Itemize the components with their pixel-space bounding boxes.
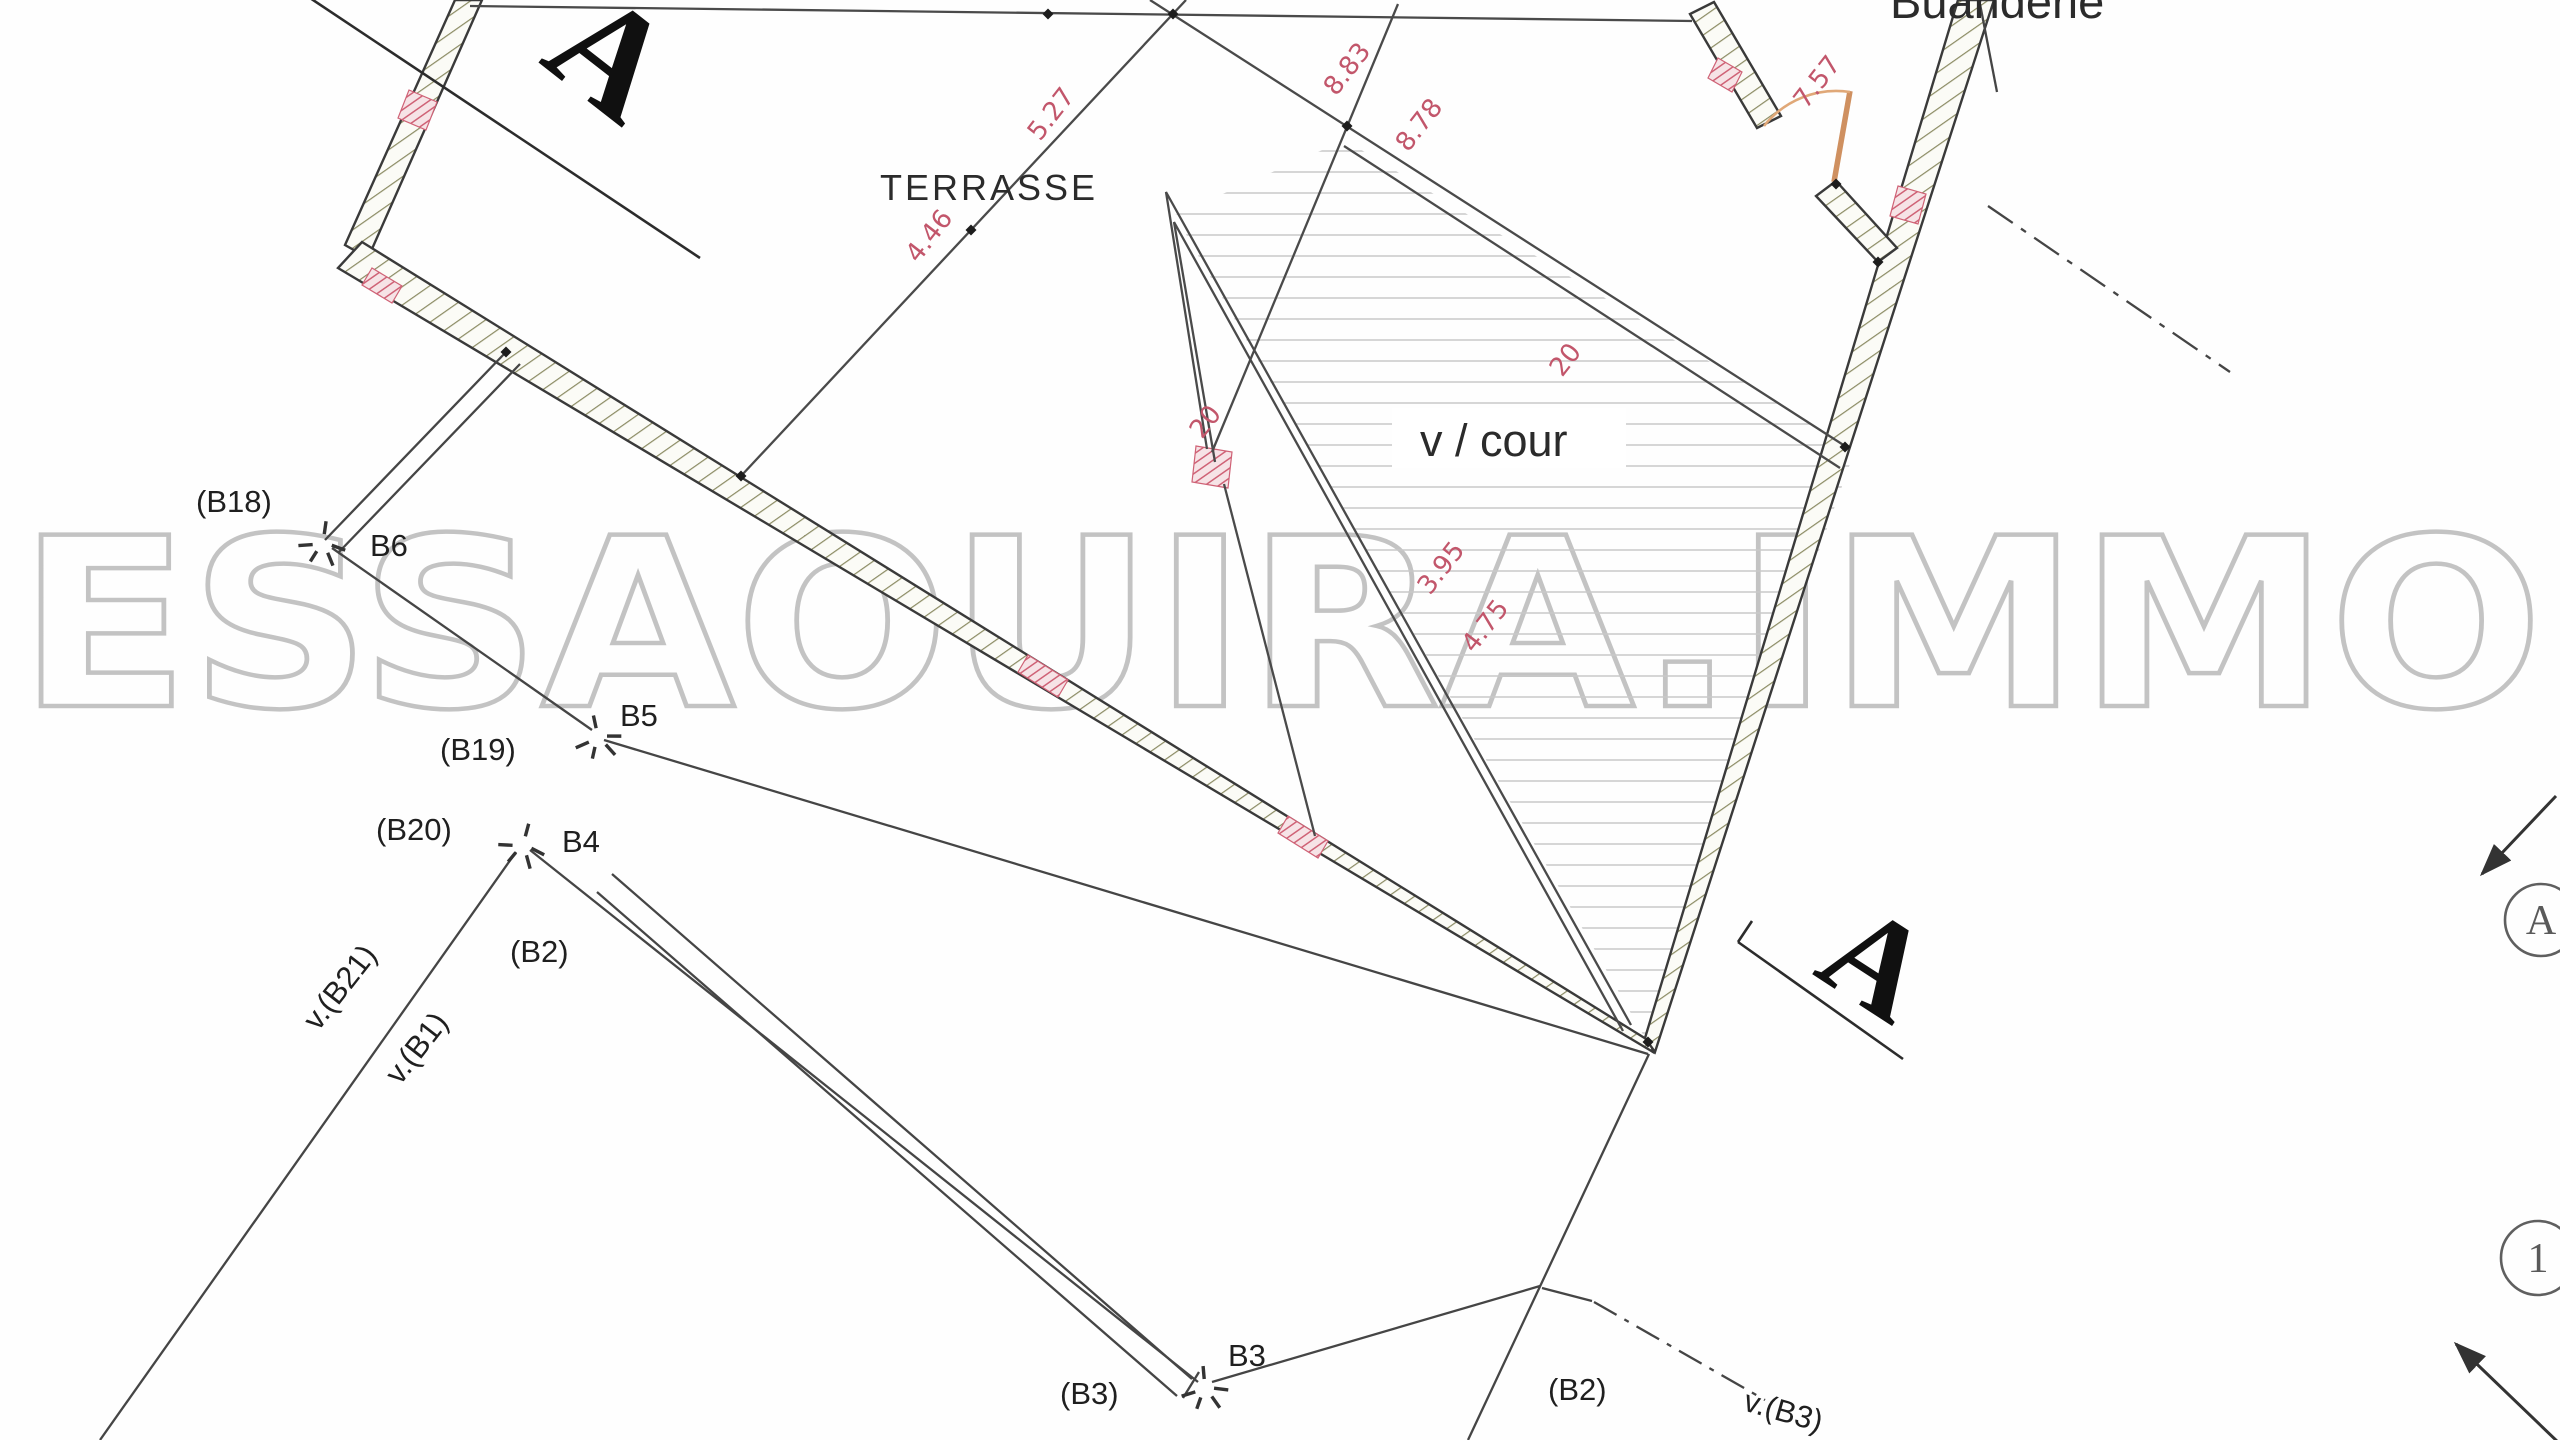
label-buanderie: Buanderie xyxy=(1890,0,2104,28)
reference-circles: A 1 xyxy=(2456,796,2560,1440)
section-letter-top: A xyxy=(517,0,705,154)
elevation-arrow xyxy=(2482,796,2556,874)
axis-arrow xyxy=(2456,1344,2560,1440)
label-b19: (B19) xyxy=(440,732,516,767)
dim-5-27: 5.27 xyxy=(1022,82,1081,146)
label-cour: v / cour xyxy=(1420,415,1568,466)
dim-4-46: 4.46 xyxy=(900,204,959,268)
opening-bottom-low xyxy=(1278,816,1328,858)
door-leaf xyxy=(1834,91,1850,182)
label-b2-bottom: (B2) xyxy=(1548,1372,1607,1407)
dashdot-northeast xyxy=(1988,206,2230,372)
dim-8-83: 8.83 xyxy=(1318,37,1377,101)
wall-buanderie-stub xyxy=(1690,2,1781,128)
elevation-circle-letter: A xyxy=(2526,898,2557,944)
dim-7-57: 7.57 xyxy=(1788,50,1847,114)
label-v-b1: v.(B1) xyxy=(378,1005,455,1090)
junction-tick xyxy=(1542,1288,1592,1301)
wall-terrace-left xyxy=(345,0,482,258)
label-b3-paren: (B3) xyxy=(1060,1376,1119,1411)
section-line-bottom-tick xyxy=(1738,921,1752,942)
label-b3: B3 xyxy=(1228,1338,1266,1373)
label-b5: B5 xyxy=(620,698,658,733)
b4-b3-line xyxy=(530,850,1198,1382)
floor-plan-page: ESSAOUIRA.IMMO xyxy=(0,0,2560,1440)
dim-8-78: 8.78 xyxy=(1390,93,1449,157)
dim-20-pier: 20 xyxy=(1184,400,1228,445)
offset-line-2 xyxy=(597,892,1177,1396)
wall-door-stub xyxy=(1816,181,1897,262)
point-b3 xyxy=(1178,1356,1229,1411)
label-b4: B4 xyxy=(562,824,600,859)
label-v-b3: v.(B3) xyxy=(1740,1383,1827,1439)
b5-wall-tip-line xyxy=(604,740,1648,1054)
label-b20: (B20) xyxy=(376,812,452,847)
label-b18: (B18) xyxy=(196,484,272,519)
label-b6: B6 xyxy=(370,528,408,563)
label-b2: (B2) xyxy=(510,934,569,969)
label-v-b21: v.(B21) xyxy=(296,938,384,1036)
b4-southwest-line xyxy=(100,852,516,1440)
terrace-diagonal xyxy=(741,0,1186,476)
label-terrasse: TERRASSE xyxy=(880,167,1098,208)
axis-circle-number: 1 xyxy=(2528,1236,2549,1282)
section-letter-bottom: A xyxy=(1795,874,1958,1052)
floor-plan-canvas: ESSAOUIRA.IMMO xyxy=(0,0,2560,1440)
offset-line-1 xyxy=(612,874,1192,1379)
pier-courtyard xyxy=(1192,446,1232,488)
dashdot-v-b3 xyxy=(1594,1302,1765,1400)
